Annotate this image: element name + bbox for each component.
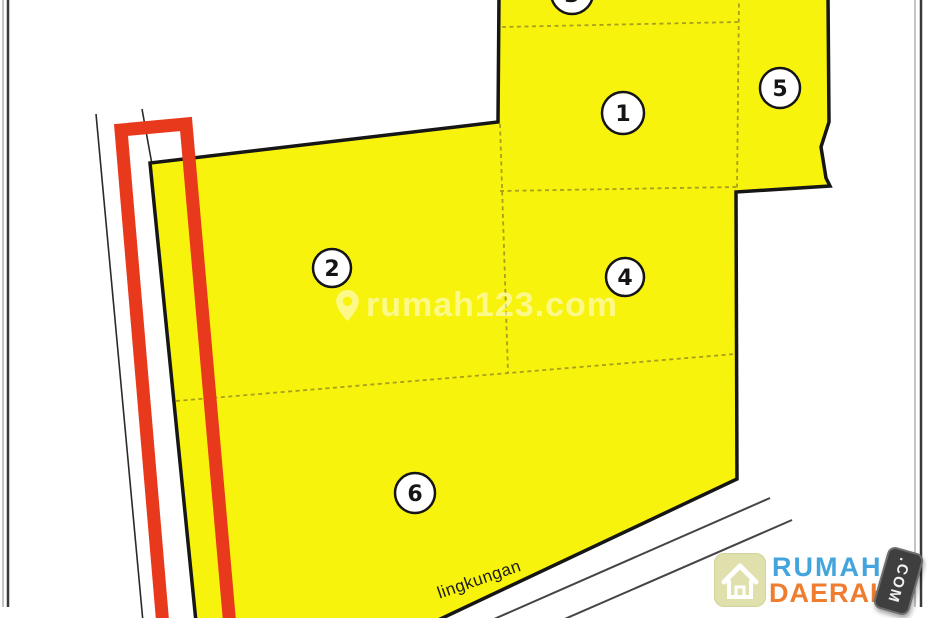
parcel-map-svg: 1 2 3 4 5 6 xyxy=(0,0,927,618)
house-icon xyxy=(714,553,766,607)
plot-marker-5: 5 xyxy=(760,68,800,108)
plot-number-4: 4 xyxy=(617,266,632,291)
plot-marker-1: 1 xyxy=(602,92,644,134)
plot-number-3: 3 xyxy=(564,0,579,8)
site-plan-image: 1 2 3 4 5 6 rumah123.com lingkungan xyxy=(0,0,927,618)
logo-word-daerah: DAERAH xyxy=(769,578,891,609)
plot-number-2: 2 xyxy=(324,257,339,282)
logo-tld-text: .COM xyxy=(884,556,913,606)
plot-number-6: 6 xyxy=(407,482,422,507)
plot-marker-6: 6 xyxy=(395,473,435,513)
plot-marker-2: 2 xyxy=(313,249,351,287)
agency-logo: RUMAH DAERAH .COM xyxy=(712,547,922,613)
survey-line-stub xyxy=(142,109,153,170)
land-parcel-fill xyxy=(150,0,830,618)
plot-number-5: 5 xyxy=(772,77,787,102)
plot-marker-4: 4 xyxy=(606,258,644,296)
plot-number-1: 1 xyxy=(615,102,630,127)
